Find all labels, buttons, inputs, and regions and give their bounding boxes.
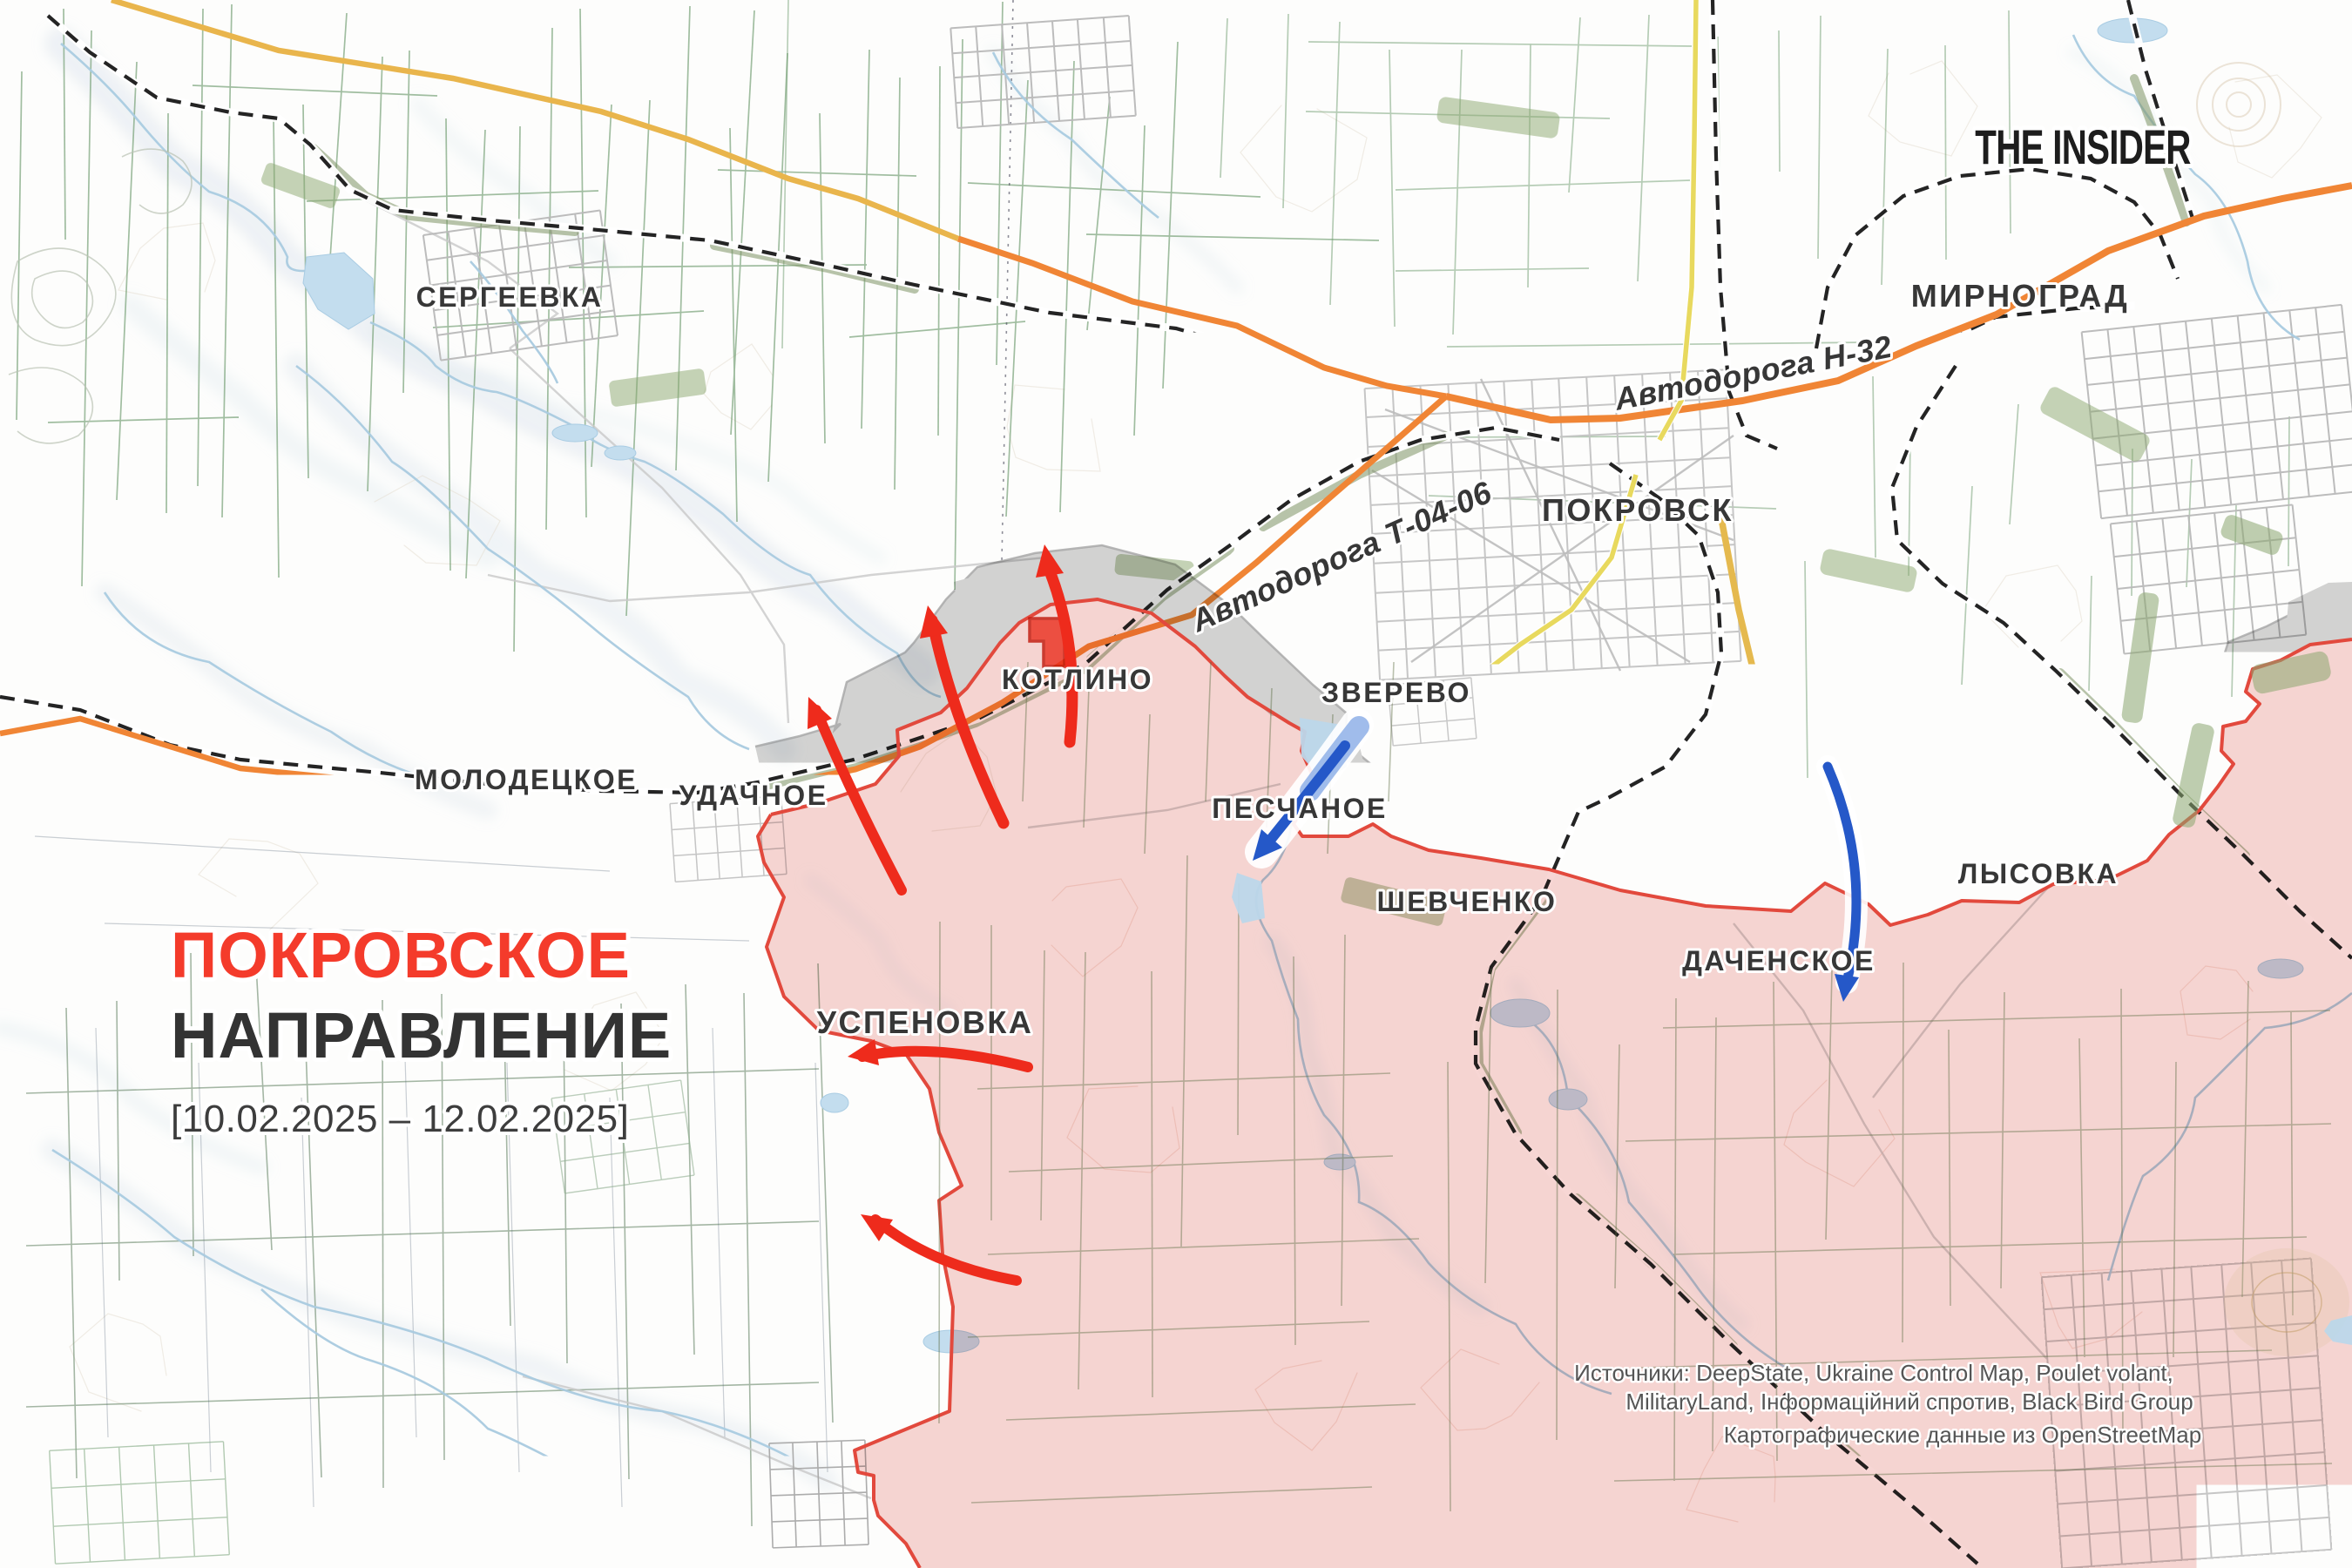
svg-text:Источники: DeepState, Ukraine: Источники: DeepState, Ukraine Control Ma…: [1574, 1360, 2173, 1386]
svg-text:СЕРГЕЕВКА: СЕРГЕЕВКА: [416, 281, 604, 313]
svg-text:ПОКРОВСКОЕ: ПОКРОВСКОЕ: [171, 919, 631, 991]
svg-text:НАПРАВЛЕНИЕ: НАПРАВЛЕНИЕ: [171, 999, 672, 1071]
svg-text:Картографические данные из Ope: Картографические данные из OpenStreetMap: [1724, 1422, 2201, 1448]
svg-text:[10.02.2025 – 12.02.2025]: [10.02.2025 – 12.02.2025]: [171, 1098, 629, 1140]
svg-text:ШЕВЧЕНКО: ШЕВЧЕНКО: [1377, 886, 1558, 917]
svg-text:ЛЫСОВКА: ЛЫСОВКА: [1958, 858, 2119, 889]
svg-text:ПОКРОВСК: ПОКРОВСК: [1542, 492, 1734, 528]
svg-text:ДАЧЕНСКОЕ: ДАЧЕНСКОЕ: [1682, 945, 1876, 977]
svg-text:ЗВЕРЕВО: ЗВЕРЕВО: [1321, 677, 1471, 708]
svg-text:УДАЧНОЕ: УДАЧНОЕ: [679, 780, 828, 811]
svg-text:MilitaryLand, Інформаційний сп: MilitaryLand, Інформаційний спротив, Bla…: [1625, 1389, 2193, 1415]
svg-text:ПЕСЧАНОЕ: ПЕСЧАНОЕ: [1212, 793, 1388, 824]
svg-text:МИРНОГРАД: МИРНОГРАД: [1911, 278, 2130, 314]
svg-text:МОЛОДЕЦКОЕ: МОЛОДЕЦКОЕ: [415, 764, 638, 795]
svg-text:КОТЛИНО: КОТЛИНО: [1002, 664, 1153, 695]
svg-text:УСПЕНОВКА: УСПЕНОВКА: [817, 1004, 1034, 1040]
svg-text:THE INSIDER: THE INSIDER: [1975, 121, 2191, 175]
